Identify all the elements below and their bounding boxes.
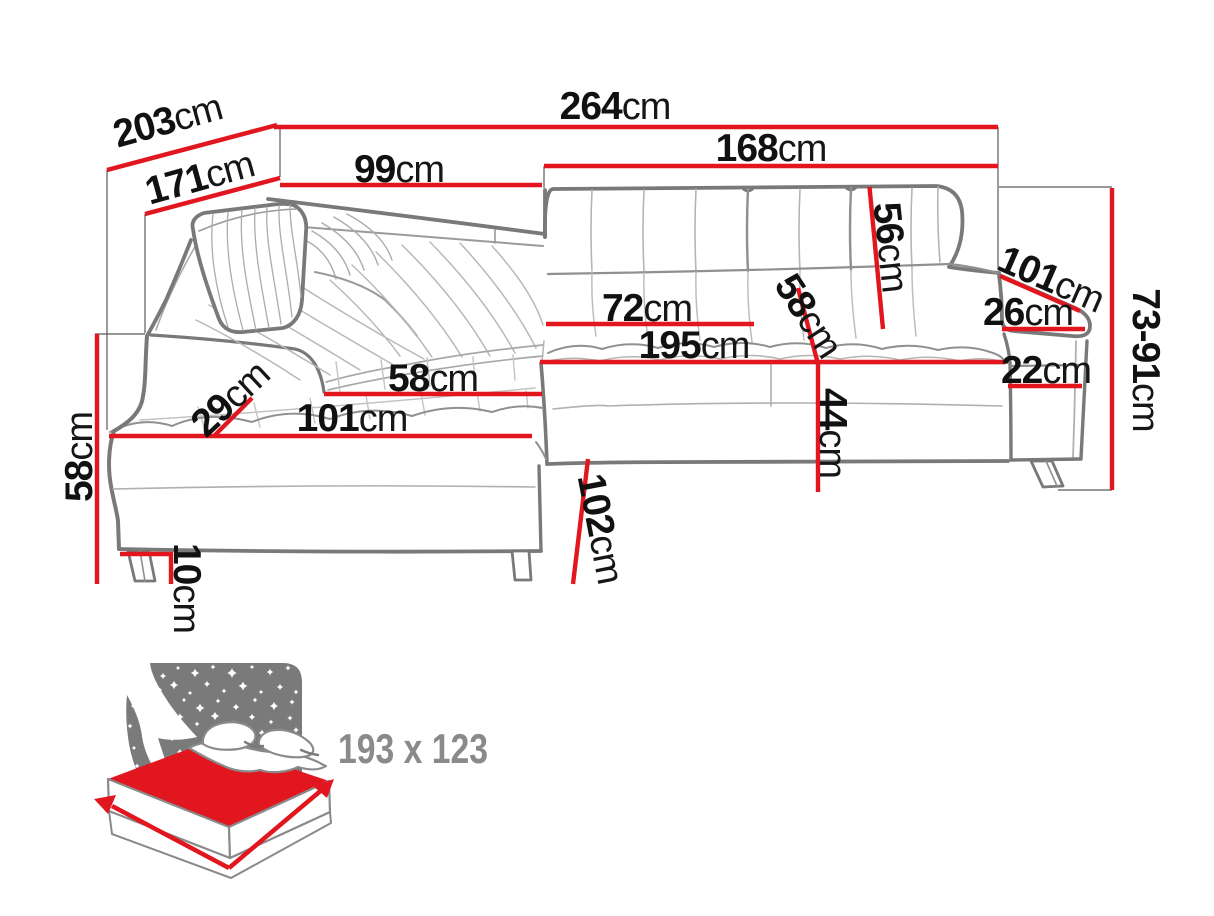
svg-text:58cm: 58cm [388,357,478,400]
svg-text:44cm: 44cm [811,388,854,478]
svg-text:22cm: 22cm [1001,349,1091,392]
svg-text:264cm: 264cm [560,85,671,128]
svg-text:73-91cm: 73-91cm [1124,288,1167,431]
svg-text:10cm: 10cm [165,543,208,633]
svg-text:193 x 123: 193 x 123 [338,725,488,772]
svg-text:168cm: 168cm [716,127,827,170]
svg-text:101cm: 101cm [297,397,408,440]
svg-text:195cm: 195cm [639,324,750,367]
svg-text:58cm: 58cm [58,412,101,502]
svg-text:26cm: 26cm [983,291,1073,334]
svg-text:99cm: 99cm [354,148,444,191]
